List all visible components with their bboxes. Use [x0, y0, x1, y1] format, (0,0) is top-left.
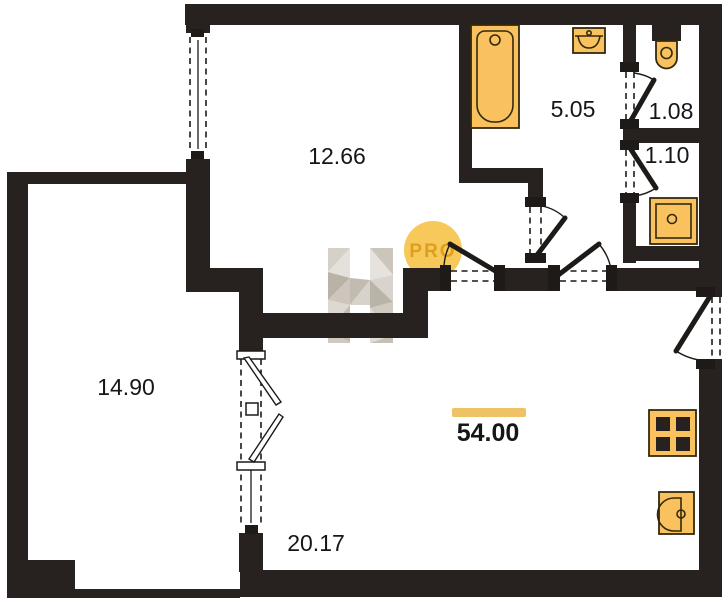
burner [676, 437, 690, 451]
room-area-label: 14.90 [97, 374, 155, 400]
wall [459, 25, 472, 183]
washbasin-icon [573, 28, 605, 53]
door-balcony-right [676, 297, 720, 361]
door-leaf [244, 357, 281, 405]
wall [240, 570, 722, 597]
wall [636, 246, 699, 261]
wall [7, 172, 210, 184]
door-leaf [249, 414, 283, 462]
room-area-label: 5.05 [551, 96, 596, 122]
wall [623, 203, 636, 263]
wall [616, 268, 699, 291]
room-area-label: 12.66 [308, 143, 366, 169]
window-sill [237, 462, 265, 470]
window-left [190, 29, 206, 159]
window-cap [191, 151, 204, 159]
burner [676, 417, 690, 431]
wall [699, 359, 722, 597]
door-handle [246, 403, 258, 415]
total-area-accent-bar [452, 408, 526, 417]
floor-plan: PRO [0, 0, 722, 600]
floor-plan-drawing: PRO [0, 0, 722, 600]
door-bathroom [530, 206, 565, 255]
bathtub-icon [471, 25, 519, 128]
door-jamb [620, 193, 639, 203]
total-area-label: 54.00 [457, 419, 520, 447]
balcony-door-window [237, 351, 283, 534]
wall [699, 4, 722, 297]
toilet-tank [652, 25, 681, 41]
shower-tray-icon [650, 198, 697, 244]
wall [459, 168, 528, 183]
room-area-label: 1.08 [649, 98, 694, 124]
wall [185, 4, 722, 25]
wall [500, 268, 548, 291]
door-jamb [620, 62, 639, 72]
wall [7, 172, 28, 598]
room-area-label: 20.17 [287, 530, 345, 556]
stove-icon [649, 410, 696, 456]
door-jamb [440, 265, 451, 291]
kitchen-sink-icon [658, 492, 694, 534]
wall [403, 268, 428, 338]
wall [239, 292, 263, 352]
door-jamb [696, 287, 715, 297]
burner [656, 417, 670, 431]
window-cap [191, 29, 204, 37]
wall [186, 268, 263, 292]
window-cap [245, 525, 258, 534]
room-area-label: 1.10 [645, 142, 690, 168]
door-entrance [557, 244, 611, 281]
toilet-icon [652, 25, 681, 68]
wall [239, 533, 263, 572]
burner [656, 437, 670, 451]
window-sill [237, 351, 265, 359]
wall [623, 25, 636, 64]
